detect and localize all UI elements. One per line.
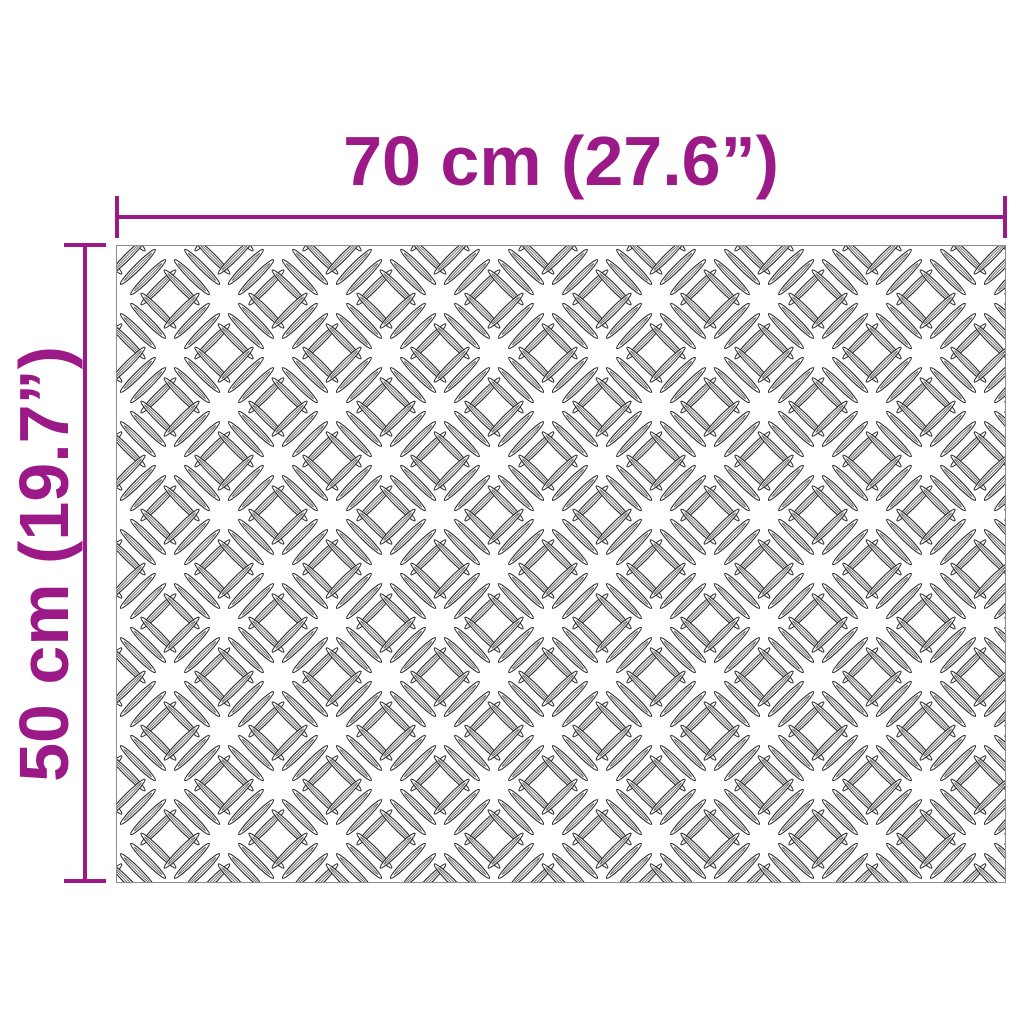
width-dimension-line (116, 215, 1006, 219)
height-dimension-label: 50 cm (19.7”) (9, 346, 79, 782)
width-dimension-label: 70 cm (27.6”) (116, 126, 1006, 196)
height-dimension-tick-top (64, 243, 106, 247)
width-dimension-tick-left (115, 196, 119, 238)
height-dimension-line (83, 245, 87, 883)
checker-plate-pattern (117, 246, 1006, 883)
width-dimension-tick-right (1003, 196, 1007, 238)
tread-plate-graphic (116, 245, 1006, 883)
height-dimension-tick-bottom (64, 879, 106, 883)
product-dimension-image: 70 cm (27.6”) 50 cm (19.7”) (0, 0, 1024, 1024)
